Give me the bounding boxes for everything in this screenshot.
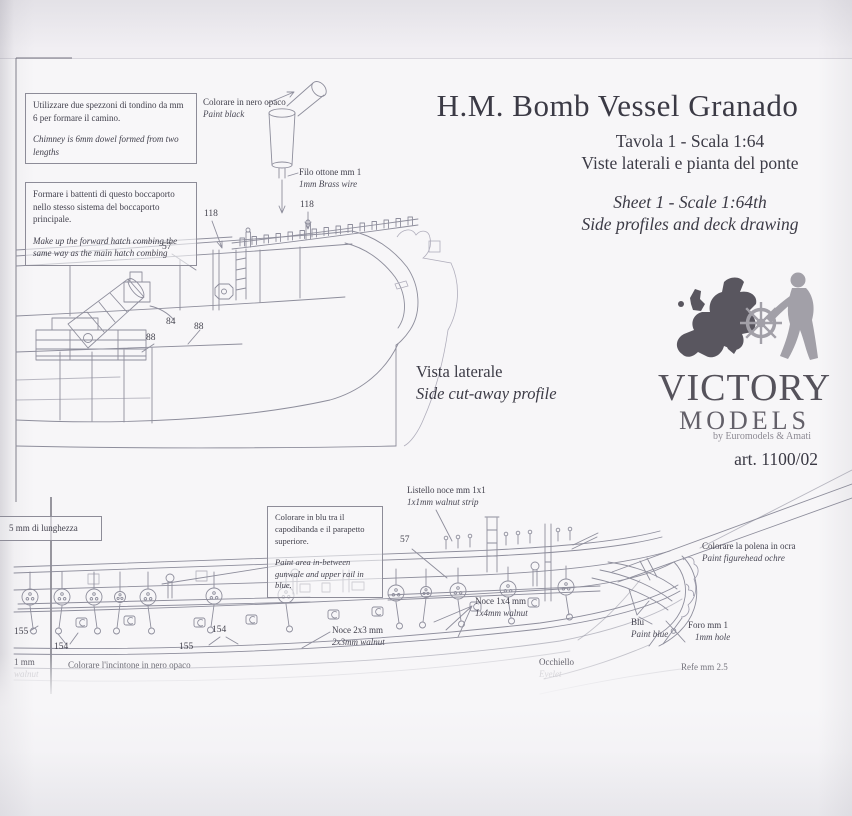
subtitle-views-en: Side profiles and deck drawing xyxy=(540,213,840,235)
part-number: 88 xyxy=(194,322,204,332)
part-number: 57 xyxy=(400,535,410,545)
label-hole: Foro mm 1 1mm hole xyxy=(688,619,730,643)
part-number: 155 xyxy=(14,627,28,637)
subtitle-sheet-scale-it: Tavola 1 - Scala 1:64 xyxy=(540,130,840,152)
subtitle-sheet-scale-en: Sheet 1 - Scale 1:64th xyxy=(540,191,840,213)
page-title: H.M. Bomb Vessel Granado xyxy=(385,88,850,124)
label-paint-blue: Blu Paint blue xyxy=(631,616,668,640)
note-hatch: Formare i battenti di questo boccaporto … xyxy=(25,182,197,266)
logo-byline: by Euromodels & Amati xyxy=(658,431,811,442)
blank-paper-area xyxy=(0,706,852,816)
subtitle-views-it: Viste laterali e pianta del ponte xyxy=(540,152,840,174)
label-paint-black: Colorare in nero opaco Paint black xyxy=(203,96,286,120)
note-length: 5 mm di lunghezza xyxy=(0,516,102,541)
upper-caption-english: Side cut-away profile xyxy=(416,384,557,404)
figurehead-sketch xyxy=(681,557,698,617)
part-number: 155 xyxy=(179,642,193,652)
label-walnut-1x4: Noce 1x4 mm 1x4mm walnut xyxy=(475,595,528,619)
note-hatch-italian: Formare i battenti di questo boccaporto … xyxy=(33,189,175,224)
label-walnut-strip: Listello noce mm 1x1 1x1mm walnut strip xyxy=(407,484,486,508)
article-number: art. 1100/02 xyxy=(700,449,818,470)
note-chimney: Utilizzare due spezzoni di tondino da mm… xyxy=(25,93,197,164)
note-chimney-italian: Utilizzare due spezzoni di tondino da mm… xyxy=(33,100,183,123)
part-number: 118 xyxy=(204,209,218,219)
victory-models-logo xyxy=(660,268,832,370)
helmsman-silhouette xyxy=(766,273,818,361)
subtitle-italian: Tavola 1 - Scala 1:64 Viste laterali e p… xyxy=(540,130,840,175)
sheet-rolloff-fade xyxy=(0,654,852,708)
label-figurehead-ochre: Colorare la polena in ocra Paint figureh… xyxy=(702,540,795,564)
note-paint-blue: Colorare in blu tra il capodibanda e il … xyxy=(267,506,383,598)
logo-name-top: VICTORY xyxy=(658,366,830,410)
upper-caption-italian: Vista laterale xyxy=(416,362,503,382)
part-number: 154 xyxy=(54,642,68,652)
note-chimney-english: Chimney is 6mm dowel formed from two len… xyxy=(33,133,189,158)
part-number: 84 xyxy=(166,317,176,327)
plan-sheet-photo: H.M. Bomb Vessel Granado Tavola 1 - Scal… xyxy=(0,0,852,816)
part-number: 88 xyxy=(146,333,156,343)
part-number: 118 xyxy=(300,200,314,210)
part-number: 57 xyxy=(162,242,172,252)
label-walnut-2x3: Noce 2x3 mm 2x3mm walnut xyxy=(332,624,385,648)
part-number: 154 xyxy=(212,625,226,635)
label-brass-wire: Filo ottone mm 1 1mm Brass wire xyxy=(299,166,361,190)
europe-map-silhouette xyxy=(677,278,756,358)
subtitle-english: Sheet 1 - Scale 1:64th Side profiles and… xyxy=(540,191,840,236)
